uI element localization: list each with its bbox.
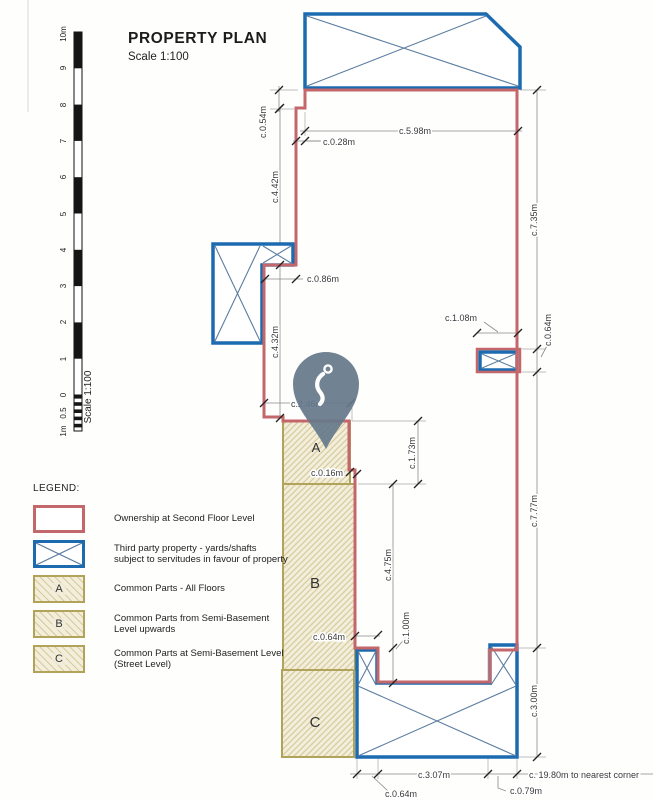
bottom-yard (357, 645, 517, 757)
zone-b-swatch: B (33, 610, 85, 638)
zone-b-swatch-letter: B (52, 618, 65, 630)
dim-300: c.3.00m (529, 685, 539, 717)
dim-064-shaft: c.0.64m (543, 314, 553, 346)
legend-label: Common Parts at Semi-Basement Level (114, 648, 283, 660)
scale-tick-2: 2 (59, 319, 68, 324)
scale-tick-4: 4 (59, 247, 68, 252)
scale-tick-3: 3 (59, 283, 68, 288)
dim-173: c.1.73m (407, 437, 417, 469)
legend-label-line2: (Street Level) (114, 659, 283, 671)
legend-item-ownership: Ownership at Second Floor Level (33, 505, 323, 533)
legend-label: Common Parts from Semi-Basement (114, 613, 269, 625)
scale-tick-1: 1 (59, 356, 68, 361)
dim-016: c.0.16m (311, 468, 343, 478)
dim-100: c.1.00m (401, 612, 411, 644)
legend-label: Ownership at Second Floor Level (114, 513, 254, 525)
dim-108: c.1.08m (445, 313, 477, 323)
zone-a-swatch: A (33, 575, 85, 603)
dim-475: c.4.75m (383, 549, 393, 581)
dim-064-bottom: c.0.64m (385, 789, 417, 799)
scale-tick-5: 5 (59, 211, 68, 216)
legend-label: Third party property - yards/shafts (114, 543, 288, 555)
scale-bar: 10m 9 8 7 6 5 4 3 2 1 0 0.5 1m Scale 1:1… (59, 26, 94, 437)
dim-307: c.3.07m (418, 770, 450, 780)
legend-item-zone-c: C Common Parts at Semi-Basement Level (S… (33, 645, 323, 673)
swatch-cross-icon (36, 543, 82, 565)
legend-item-zone-a: A Common Parts - All Floors (33, 575, 323, 603)
scale-tick-6: 6 (59, 174, 68, 179)
legend-item-third-party: Third party property - yards/shafts subj… (33, 540, 323, 568)
left-yard (213, 244, 293, 343)
dim-086: c.0.86m (307, 274, 339, 284)
dim-777: c.7.77m (529, 495, 539, 527)
dim-432: c.4.32m (270, 326, 280, 358)
legend-label: Common Parts - All Floors (114, 583, 225, 595)
scale-tick-9: 9 (59, 65, 68, 70)
scale-tick-0: 0 (59, 392, 68, 397)
scale-tick-7: 7 (59, 138, 68, 143)
legend-label-line2: subject to servitudes in favour of prope… (114, 554, 288, 566)
dim-442: c.4.42m (270, 171, 280, 203)
zone-c-swatch-letter: C (52, 653, 66, 665)
third-party-swatch (33, 540, 85, 568)
dim-598: c.5.98m (399, 126, 431, 136)
legend-heading: LEGEND: (33, 483, 323, 494)
zone-c-swatch: C (33, 645, 85, 673)
legend-item-zone-b: B Common Parts from Semi-Basement Level … (33, 610, 323, 638)
dim-054: c.0.54m (258, 106, 268, 138)
legend: LEGEND: Ownership at Second Floor Level … (33, 483, 323, 680)
scale-tick-1m: 1m (59, 425, 68, 436)
zone-a-label: A (312, 440, 321, 455)
dim-1980: c. 19.80m to nearest corner (529, 770, 639, 780)
zone-c-label: C (310, 714, 321, 731)
plan-drawing: 10m 9 8 7 6 5 4 3 2 1 0 0.5 1m Scale 1:1… (0, 0, 653, 800)
property-plan-page: PROPERTY PLAN Scale 1:100 10m (0, 0, 653, 800)
legend-label-line2: Level upwards (114, 624, 269, 636)
zone-a-swatch-letter: A (52, 583, 65, 595)
scale-tick-05: 0.5 (59, 407, 68, 419)
scale-tick-8: 8 (59, 102, 68, 107)
scale-tick-10m: 10m (59, 26, 68, 42)
ownership-swatch (33, 505, 85, 533)
dim-079: c.0.79m (510, 786, 542, 796)
dim-028: c.0.28m (323, 137, 355, 147)
scale-bar-caption: Scale 1:100 (83, 370, 94, 423)
dim-735: c.7.35m (529, 204, 539, 236)
